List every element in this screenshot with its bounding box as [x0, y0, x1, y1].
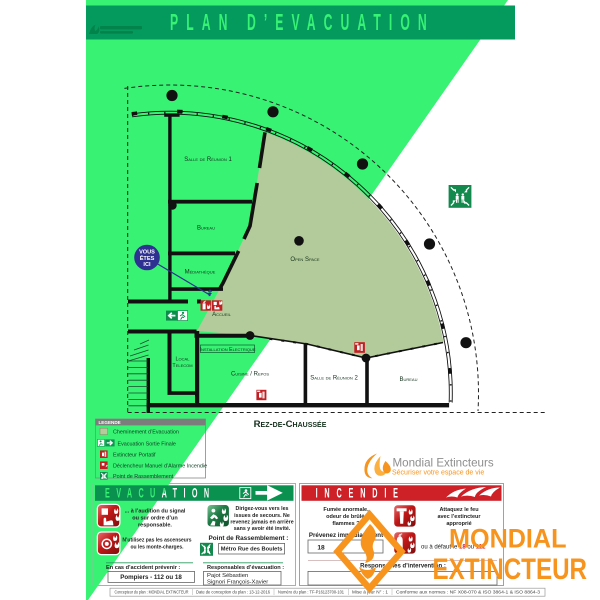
svg-text:ou sur ordre d’un: ou sur ordre d’un	[132, 515, 178, 521]
svg-text:ou les monte-charges.: ou les monte-charges.	[130, 544, 184, 550]
svg-text:Conforme aux normes : NF X08-0: Conforme aux normes : NF X08-070 & ISO 3…	[396, 590, 541, 595]
svg-text:responsable.: responsable.	[138, 522, 172, 528]
svg-text:Attaquez le feu: Attaquez le feu	[439, 507, 478, 513]
svg-text:Mondial Extincteurs: Mondial Extincteurs	[393, 457, 494, 470]
svg-text:18: 18	[317, 544, 325, 551]
svg-text:En cas d’accident prévenir :: En cas d’accident prévenir :	[106, 565, 180, 571]
svg-text:Extincteur Portatif: Extincteur Portatif	[113, 452, 156, 458]
svg-text:ÊTES: ÊTES	[140, 254, 155, 262]
svg-text:Point de Rassemblement :: Point de Rassemblement :	[209, 535, 289, 542]
svg-text:MONDIAL: MONDIAL	[449, 524, 567, 554]
svg-text:ICI: ICI	[143, 262, 151, 268]
svg-text:Installation Electrique: Installation Electrique	[200, 347, 256, 353]
svg-text:issues de secours. Ne: issues de secours. Ne	[234, 513, 290, 519]
svg-text:Pompiers - 112 ou 18: Pompiers - 112 ou 18	[120, 574, 182, 581]
svg-text:Métro Rue des Boulets: Métro Rue des Boulets	[221, 547, 283, 553]
svg-text:Telecom: Telecom	[172, 363, 192, 369]
svg-text:Signori François-Xavier: Signori François-Xavier	[207, 580, 268, 586]
svg-text:VOUS: VOUS	[139, 250, 155, 256]
svg-text:Déclencheur Manuel d’Alarme In: Déclencheur Manuel d’Alarme Incendie	[113, 463, 207, 469]
svg-text:Open Space: Open Space	[290, 257, 319, 263]
svg-text:Sécuriser votre espace de vie: Sécuriser votre espace de vie	[392, 470, 484, 477]
svg-text:Salle de Réunion 1: Salle de Réunion 1	[184, 157, 232, 163]
svg-text:Bureau: Bureau	[399, 377, 417, 383]
svg-text:Cheminement d’Evacuation: Cheminement d’Evacuation	[113, 430, 179, 436]
svg-text:Cuisine / Repos: Cuisine / Repos	[231, 372, 269, 378]
svg-text:LEGENDE: LEGENDE	[99, 420, 121, 425]
svg-text:revenez jamais en arrière: revenez jamais en arrière	[230, 519, 293, 525]
svg-text:Dirigez-vous vers les: Dirigez-vous vers les	[236, 506, 289, 512]
svg-text:Rez-de-Chaussée: Rez-de-Chaussée	[254, 419, 327, 430]
svg-text:Fumée anormale,: Fumée anormale,	[323, 507, 369, 513]
svg-text:Local: Local	[176, 357, 191, 363]
svg-text:EXTINCTEUR: EXTINCTEUR	[433, 553, 588, 586]
svg-text:Accueil: Accueil	[212, 312, 231, 318]
svg-text:Date de conception du plan : 1: Date de conception du plan : 13-12-2016	[196, 590, 271, 595]
svg-text:Médiathèque: Médiathèque	[185, 270, 216, 276]
svg-text:... à l’audition du signal: ... à l’audition du signal	[125, 508, 186, 514]
svg-text:avec l’extincteur: avec l’extincteur	[437, 514, 481, 520]
svg-text:Point de Rassemblement: Point de Rassemblement	[113, 474, 174, 480]
svg-text:Pajot Sébastien: Pajot Sébastien	[207, 573, 248, 579]
svg-text:Concepteur du plan : MONDIAL E: Concepteur du plan : MONDIAL EXTINCTEUR	[115, 590, 189, 595]
svg-text:Bureau: Bureau	[197, 226, 215, 232]
svg-text:Numéro du plan : TF-P16123700-: Numéro du plan : TF-P16123700-101	[278, 590, 345, 595]
svg-text:Responsables d’évacuation :: Responsables d’évacuation :	[207, 565, 284, 571]
svg-text:N’utilisez pas les ascenseurs: N’utilisez pas les ascenseurs	[122, 538, 191, 544]
svg-text:Evacuation Sortie Finale: Evacuation Sortie Finale	[118, 442, 176, 448]
svg-text:INCENDIE: INCENDIE	[316, 486, 405, 501]
svg-text:odeur de brûlé,: odeur de brûlé,	[326, 514, 366, 520]
svg-text:sans y avoir été invité.: sans y avoir été invité.	[234, 526, 291, 532]
svg-text:Salle de Réunion 2: Salle de Réunion 2	[310, 376, 358, 382]
